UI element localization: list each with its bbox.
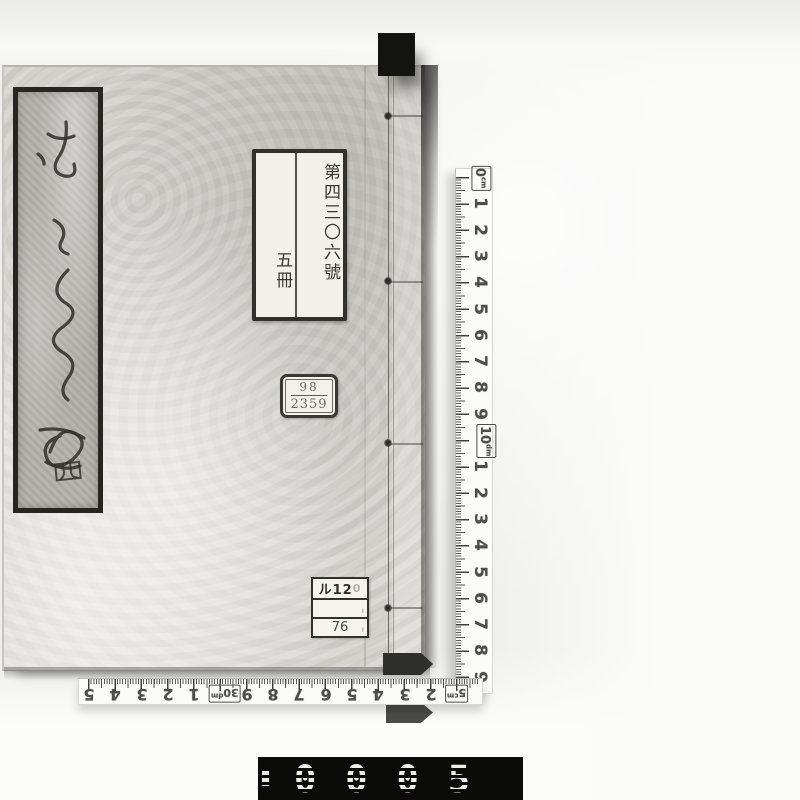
ruler-number: 10dm bbox=[476, 424, 496, 458]
shelf-label-row1: ル120 bbox=[313, 579, 367, 600]
ruler-number: 3 bbox=[471, 245, 489, 267]
counter-notch bbox=[262, 770, 269, 786]
ruler-number: 2 bbox=[471, 219, 489, 241]
ruler-number: 2 bbox=[471, 482, 489, 504]
ruler-number: 4 bbox=[471, 271, 489, 293]
binding-stitch bbox=[389, 281, 423, 283]
volume-count-text: 五冊 bbox=[256, 153, 295, 317]
call-number-label: 第四三〇六號 五冊 bbox=[252, 149, 347, 321]
ruler-number: 5 bbox=[77, 686, 101, 703]
ruler-number: 9 bbox=[235, 686, 259, 703]
shelf-code-faint-digit: 0 bbox=[353, 582, 362, 595]
ruler-number: 4 bbox=[471, 534, 489, 556]
shelf-label-row2: ı bbox=[313, 600, 367, 619]
ruler-number: 8 bbox=[471, 639, 489, 661]
shelf-number: 76 bbox=[332, 620, 349, 635]
ruler-number: 6 bbox=[314, 686, 338, 703]
binding-stitch bbox=[389, 115, 423, 117]
ruler-number: 5 bbox=[471, 298, 489, 320]
stamp-number-top: 98 bbox=[291, 381, 326, 396]
ruler-number: 1 bbox=[182, 686, 206, 703]
title-slip: 四 bbox=[13, 87, 103, 513]
vertical-ruler: 0cm12345678910dm123456789 bbox=[455, 168, 493, 694]
ruler-number: 9 bbox=[471, 403, 489, 425]
pencil-mark: ı bbox=[362, 625, 364, 634]
ruler-number: 0cm bbox=[471, 166, 491, 191]
ruler-number: 4 bbox=[103, 686, 127, 703]
archival-photograph: 四 第四三〇六號 五冊 98 2359 ル120 ı 76 ı 0cm12345… bbox=[0, 0, 800, 800]
ruler-number: 5cm bbox=[445, 685, 468, 703]
pencil-mark: ı bbox=[362, 606, 364, 615]
ruler-number: 2 bbox=[419, 686, 443, 703]
book-edge-shadow bbox=[421, 65, 438, 668]
black-pointer-bottom bbox=[386, 702, 433, 723]
black-tab-top bbox=[378, 33, 415, 76]
spine-highlight bbox=[392, 66, 422, 667]
volume-four-character bbox=[53, 458, 85, 485]
ruler-number: 2 bbox=[156, 686, 180, 703]
call-number-text: 第四三〇六號 bbox=[295, 153, 343, 317]
ruler-number: 5 bbox=[340, 686, 364, 703]
shelf-code: ル12 bbox=[319, 579, 353, 598]
ruler-number: 3 bbox=[471, 508, 489, 530]
ruler-number: 1 bbox=[471, 192, 489, 214]
ruler-number: 1 bbox=[471, 455, 489, 477]
ruler-number: 4 bbox=[366, 686, 390, 703]
binding-stitch bbox=[389, 607, 423, 609]
stamp-number-bottom: 2359 bbox=[290, 396, 327, 412]
ruler-number: 8 bbox=[471, 376, 489, 398]
ruler-cm-ticks bbox=[456, 177, 469, 679]
ruler-number: 3 bbox=[393, 686, 417, 703]
shelf-label-row3: 76 ı bbox=[313, 619, 367, 636]
ruler-number: 8 bbox=[261, 686, 285, 703]
horizontal-ruler: 5432130dm987654325cm bbox=[78, 678, 483, 705]
ruler-number: 7 bbox=[471, 350, 489, 372]
ruler-number: 6 bbox=[471, 587, 489, 609]
accession-stamp-label: 98 2359 bbox=[280, 374, 338, 418]
title-slip-calligraphy bbox=[22, 104, 98, 494]
shelf-number-label: ル120 ı 76 ı bbox=[311, 577, 369, 638]
counter-digits: 0005 bbox=[294, 758, 499, 800]
binding-thread bbox=[388, 70, 394, 666]
ruler-number: 3 bbox=[130, 686, 154, 703]
ruler-number: 5 bbox=[471, 561, 489, 583]
ruler-number: 6 bbox=[471, 324, 489, 346]
frame-counter: 0005 bbox=[258, 757, 523, 800]
binding-stitch bbox=[389, 443, 423, 445]
ruler-number: 7 bbox=[471, 613, 489, 635]
ruler-number: 7 bbox=[287, 686, 311, 703]
